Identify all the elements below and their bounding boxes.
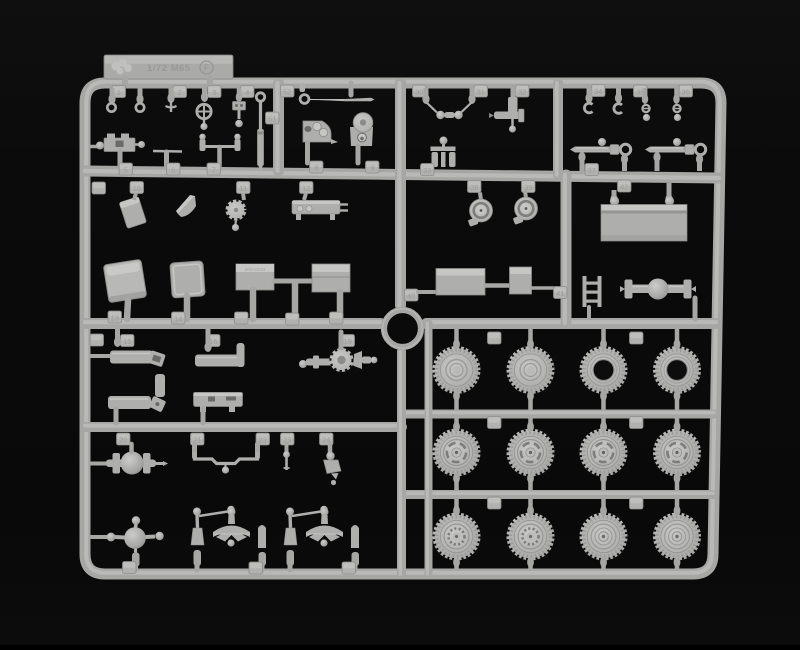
svg-text:1/72 M65: 1/72 M65 [147, 63, 191, 74]
svg-text:42: 42 [620, 182, 628, 191]
svg-text:51: 51 [268, 114, 276, 123]
svg-text:7: 7 [212, 165, 216, 174]
svg-text:3: 3 [212, 88, 216, 97]
svg-text:13: 13 [111, 313, 119, 322]
svg-text:10: 10 [133, 184, 141, 193]
svg-text:F: F [204, 64, 209, 73]
svg-text:1: 1 [117, 88, 121, 97]
svg-text:36: 36 [682, 87, 690, 96]
svg-text:15: 15 [123, 337, 131, 346]
svg-text:9: 9 [370, 163, 374, 172]
svg-text:4: 4 [245, 88, 249, 97]
svg-text:30: 30 [415, 87, 423, 96]
svg-text:38: 38 [470, 183, 478, 192]
svg-text:34: 34 [594, 87, 602, 96]
svg-text:20: 20 [119, 435, 127, 444]
svg-text:11: 11 [239, 184, 247, 193]
svg-text:8: 8 [314, 163, 318, 172]
svg-text:52: 52 [283, 87, 291, 96]
svg-text:33: 33 [423, 166, 431, 175]
svg-text:DRAGON: DRAGON [245, 267, 265, 272]
svg-text:22: 22 [259, 435, 267, 444]
svg-text:40: 40 [407, 291, 415, 300]
svg-text:14: 14 [174, 314, 182, 323]
svg-text:31: 31 [477, 87, 485, 96]
svg-text:6: 6 [171, 165, 175, 174]
svg-text:5: 5 [124, 165, 128, 174]
svg-text:37: 37 [588, 166, 596, 175]
svg-text:19: 19 [344, 337, 352, 346]
svg-text:12: 12 [302, 184, 310, 193]
svg-text:32: 32 [518, 87, 526, 96]
svg-text:41: 41 [556, 289, 564, 298]
svg-text:2: 2 [178, 88, 182, 97]
